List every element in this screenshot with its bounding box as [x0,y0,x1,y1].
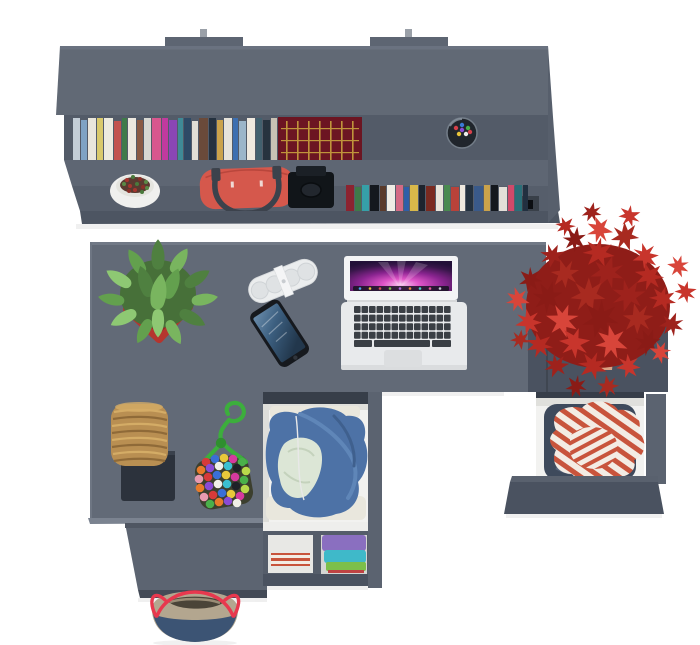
pedestal-top-shade [125,523,267,528]
right-drawer-rail [646,394,666,484]
shelf-top-panel [56,46,550,115]
desk-scene [0,0,700,645]
drawer-rail-right [368,392,382,588]
cubby-shelf [263,522,368,586]
shelf-front-edge [80,211,560,224]
cubby-bottom-band [263,574,368,586]
blue-hoodie [266,407,368,517]
center-drawer-unit [263,392,382,588]
rope-knot [216,438,226,448]
antique-book-set [278,117,362,164]
wall-shelf [56,29,560,224]
books-lower-row [346,185,528,212]
laptop [341,256,467,370]
striped-cloth [271,553,310,566]
folded-clothes-stack [322,535,366,573]
laptop-spacebar-row [354,340,451,347]
right-drawer-front [504,482,664,514]
flower-pot [110,174,160,208]
desk-left-edge [90,242,92,518]
laptop-trackpad [384,350,422,367]
right-drawer-front-lip [510,476,658,482]
striped-shirt [550,401,644,481]
drawer-back-slot [263,392,368,404]
shelf-top-edge [60,46,548,50]
wicker-basket [111,404,168,466]
pen-cup [447,118,477,148]
pedestal-side [125,523,267,590]
cubby-top-band [263,522,368,531]
cabinet-slot [536,392,644,398]
camera [288,166,334,208]
